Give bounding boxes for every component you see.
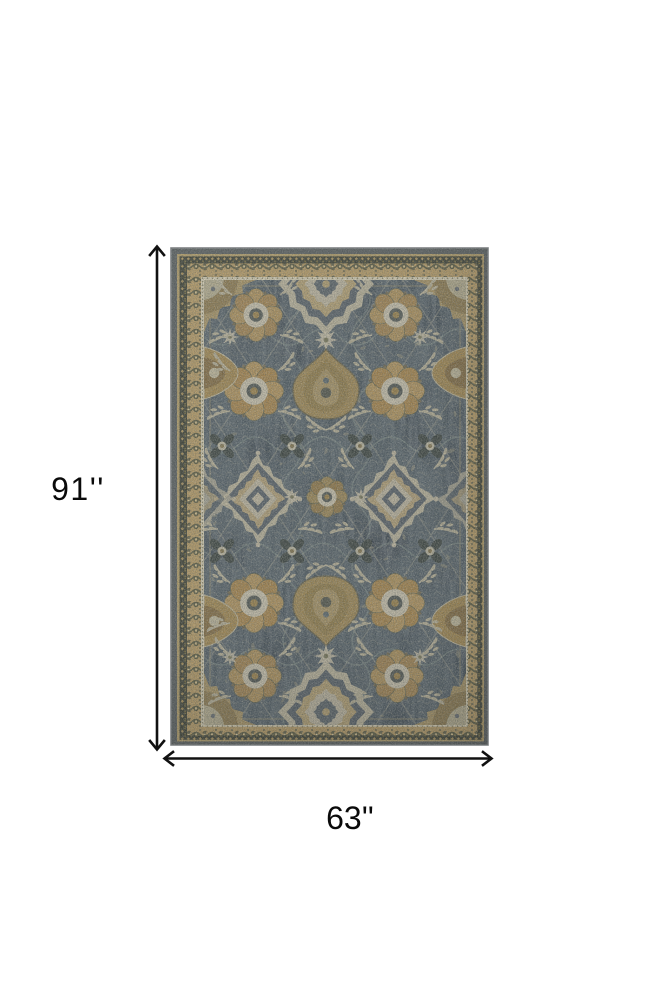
svg-text:91'': 91'' <box>51 471 105 507</box>
svg-text:63'': 63'' <box>326 800 374 836</box>
